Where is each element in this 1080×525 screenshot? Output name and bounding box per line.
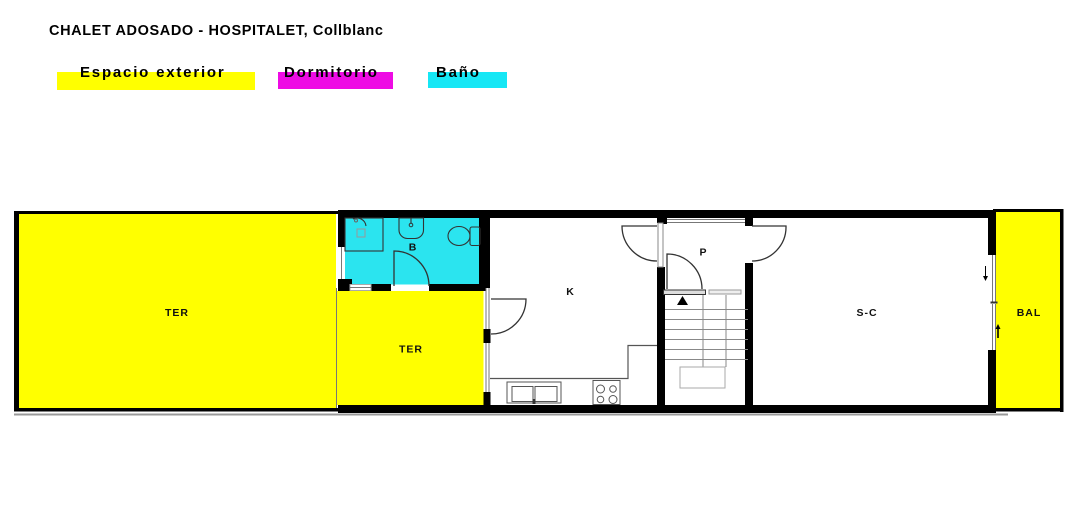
shadow-line [14, 414, 1008, 416]
wall-segment [993, 209, 1063, 212]
wall-segment [14, 211, 19, 411]
wall-segment [338, 405, 993, 413]
wall-segment [479, 211, 490, 288]
room-label-hall: P [699, 247, 707, 259]
legend-label-bano: Baño [436, 64, 481, 81]
wall-segment [993, 408, 1063, 412]
stair-landing-outline [680, 367, 725, 388]
room-label-ter-left: TER [165, 307, 189, 319]
wall-segment [484, 329, 491, 343]
slide-arrow-down-head [983, 276, 988, 281]
kitchen-counter-line [490, 346, 657, 379]
wall-segment [1060, 209, 1064, 412]
wall-segment [14, 211, 338, 214]
wall-segment [338, 211, 345, 247]
wall-segment [338, 210, 993, 218]
wall-segment [988, 350, 996, 413]
window-jamb [745, 218, 751, 224]
wall-segment [338, 244, 345, 247]
stairs [664, 290, 749, 388]
hall-top-window [667, 220, 745, 223]
room-label-bathroom: B [409, 242, 418, 254]
wall-segment [988, 210, 996, 255]
wall-segment [484, 392, 491, 405]
door-arc-kitchen-hall [622, 226, 657, 261]
wall-segment [657, 267, 665, 405]
door-arc-hall-living [752, 226, 786, 261]
room-label-balcony: BAL [1017, 307, 1042, 319]
wall-segment [429, 284, 486, 291]
door-arc-hall-stairs [667, 254, 702, 289]
wall-segment [14, 408, 338, 412]
stair-threshold [664, 290, 706, 295]
stair-threshold [709, 290, 741, 294]
tap-icon [533, 399, 536, 404]
legend-label-espacio-exterior: Espacio exterior [80, 64, 226, 81]
stairs-up-arrow [677, 296, 688, 305]
legend-label-dormitorio: Dormitorio [284, 64, 379, 81]
room-label-kitchen: K [566, 286, 575, 298]
room-label-living: S-C [856, 307, 877, 319]
wall-segment [340, 284, 350, 291]
kitchen-fittings [490, 346, 657, 405]
floor-plan-page: CHALET ADOSADO - HOSPITALET, Collblanc E… [0, 0, 1080, 525]
wall-segment [371, 284, 391, 291]
door-frame-kitchen-hall [658, 223, 663, 267]
room-label-ter-patio: TER [399, 344, 423, 356]
door-arc-kitchen-terrace [491, 299, 526, 334]
window-mullion [991, 302, 998, 304]
wall-segment [745, 263, 753, 405]
